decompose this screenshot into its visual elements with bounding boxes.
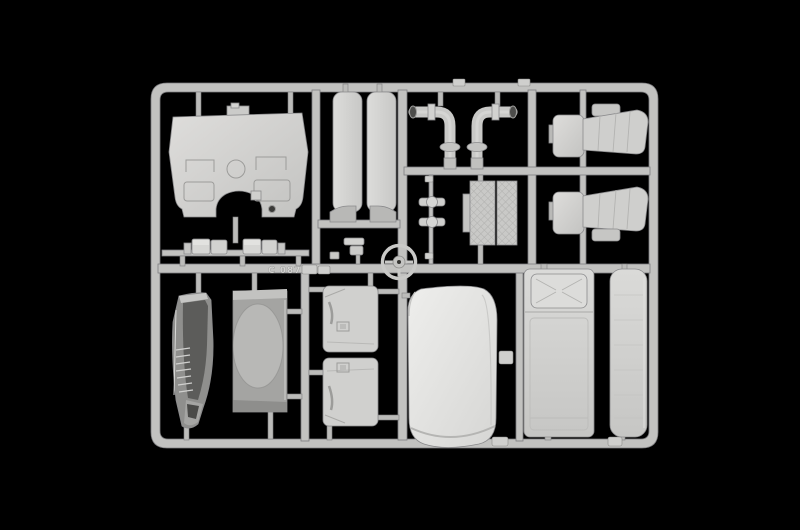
pipe-collar xyxy=(428,104,435,120)
seat-backrest xyxy=(553,192,584,234)
sprue-code-embossed: C 087 xyxy=(268,266,302,276)
roof-panel-body xyxy=(408,286,497,448)
pipe-flange xyxy=(440,143,460,152)
bulkhead-latch xyxy=(251,191,261,200)
sprue-photo: C 087 xyxy=(0,0,800,530)
runner-right-divider-bottom xyxy=(516,268,523,441)
steering-wheel-hub-hole xyxy=(397,260,401,264)
bulkhead-hole xyxy=(269,206,276,213)
door-crank xyxy=(340,324,346,329)
part-roof-panel-white xyxy=(408,286,497,448)
pipe-foot xyxy=(444,158,456,169)
mat-half-right xyxy=(497,181,517,245)
pipe-collar xyxy=(492,104,499,120)
narrow-bunk-body xyxy=(610,269,647,437)
runner-right-divider-top xyxy=(528,90,536,268)
part-door-card-lower xyxy=(323,358,378,426)
seat-armrest xyxy=(592,229,620,241)
mat-side-strip xyxy=(463,194,470,232)
pipe-open-end xyxy=(510,106,517,118)
bulkhead-top-tab-notch xyxy=(231,103,239,108)
part-bunk-mattress-narrow xyxy=(610,269,647,437)
seat-backrest xyxy=(553,115,584,157)
bunk-pillow xyxy=(531,274,587,308)
runner-left-divider-top xyxy=(312,90,320,268)
runner-mid-right-horizontal xyxy=(404,167,650,175)
model-kit-sprue: C 087 xyxy=(0,0,800,530)
rear-wall-bottom-face xyxy=(233,400,287,412)
part-door-card-upper xyxy=(323,286,378,352)
mat-half-left xyxy=(470,181,495,245)
side-sill-slat-left xyxy=(333,92,362,212)
door-crank xyxy=(340,365,346,370)
part-cab-rear-wall-with-oval-recess xyxy=(233,289,287,412)
runner-left-divider-bottom xyxy=(301,268,309,441)
pipe-flange xyxy=(467,143,487,152)
pipe-open-end xyxy=(410,106,417,118)
part-textured-floor-mat xyxy=(463,181,517,245)
side-sill-slat-right xyxy=(367,92,396,212)
pipe-foot xyxy=(471,158,483,169)
part-bunk-bed-with-pillow xyxy=(524,269,594,437)
